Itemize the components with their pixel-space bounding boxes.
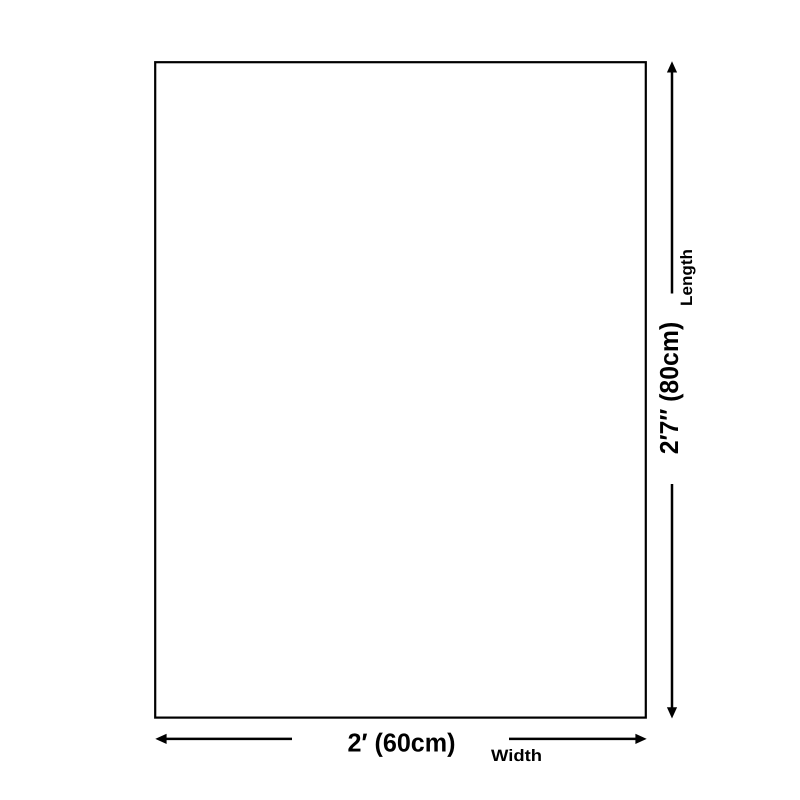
svg-text:2′ (60cm): 2′ (60cm) [348,728,456,758]
svg-text:2′7″ (80cm): 2′7″ (80cm) [654,322,684,455]
svg-text:Width: Width [491,747,542,765]
svg-text:Length: Length [678,249,696,306]
